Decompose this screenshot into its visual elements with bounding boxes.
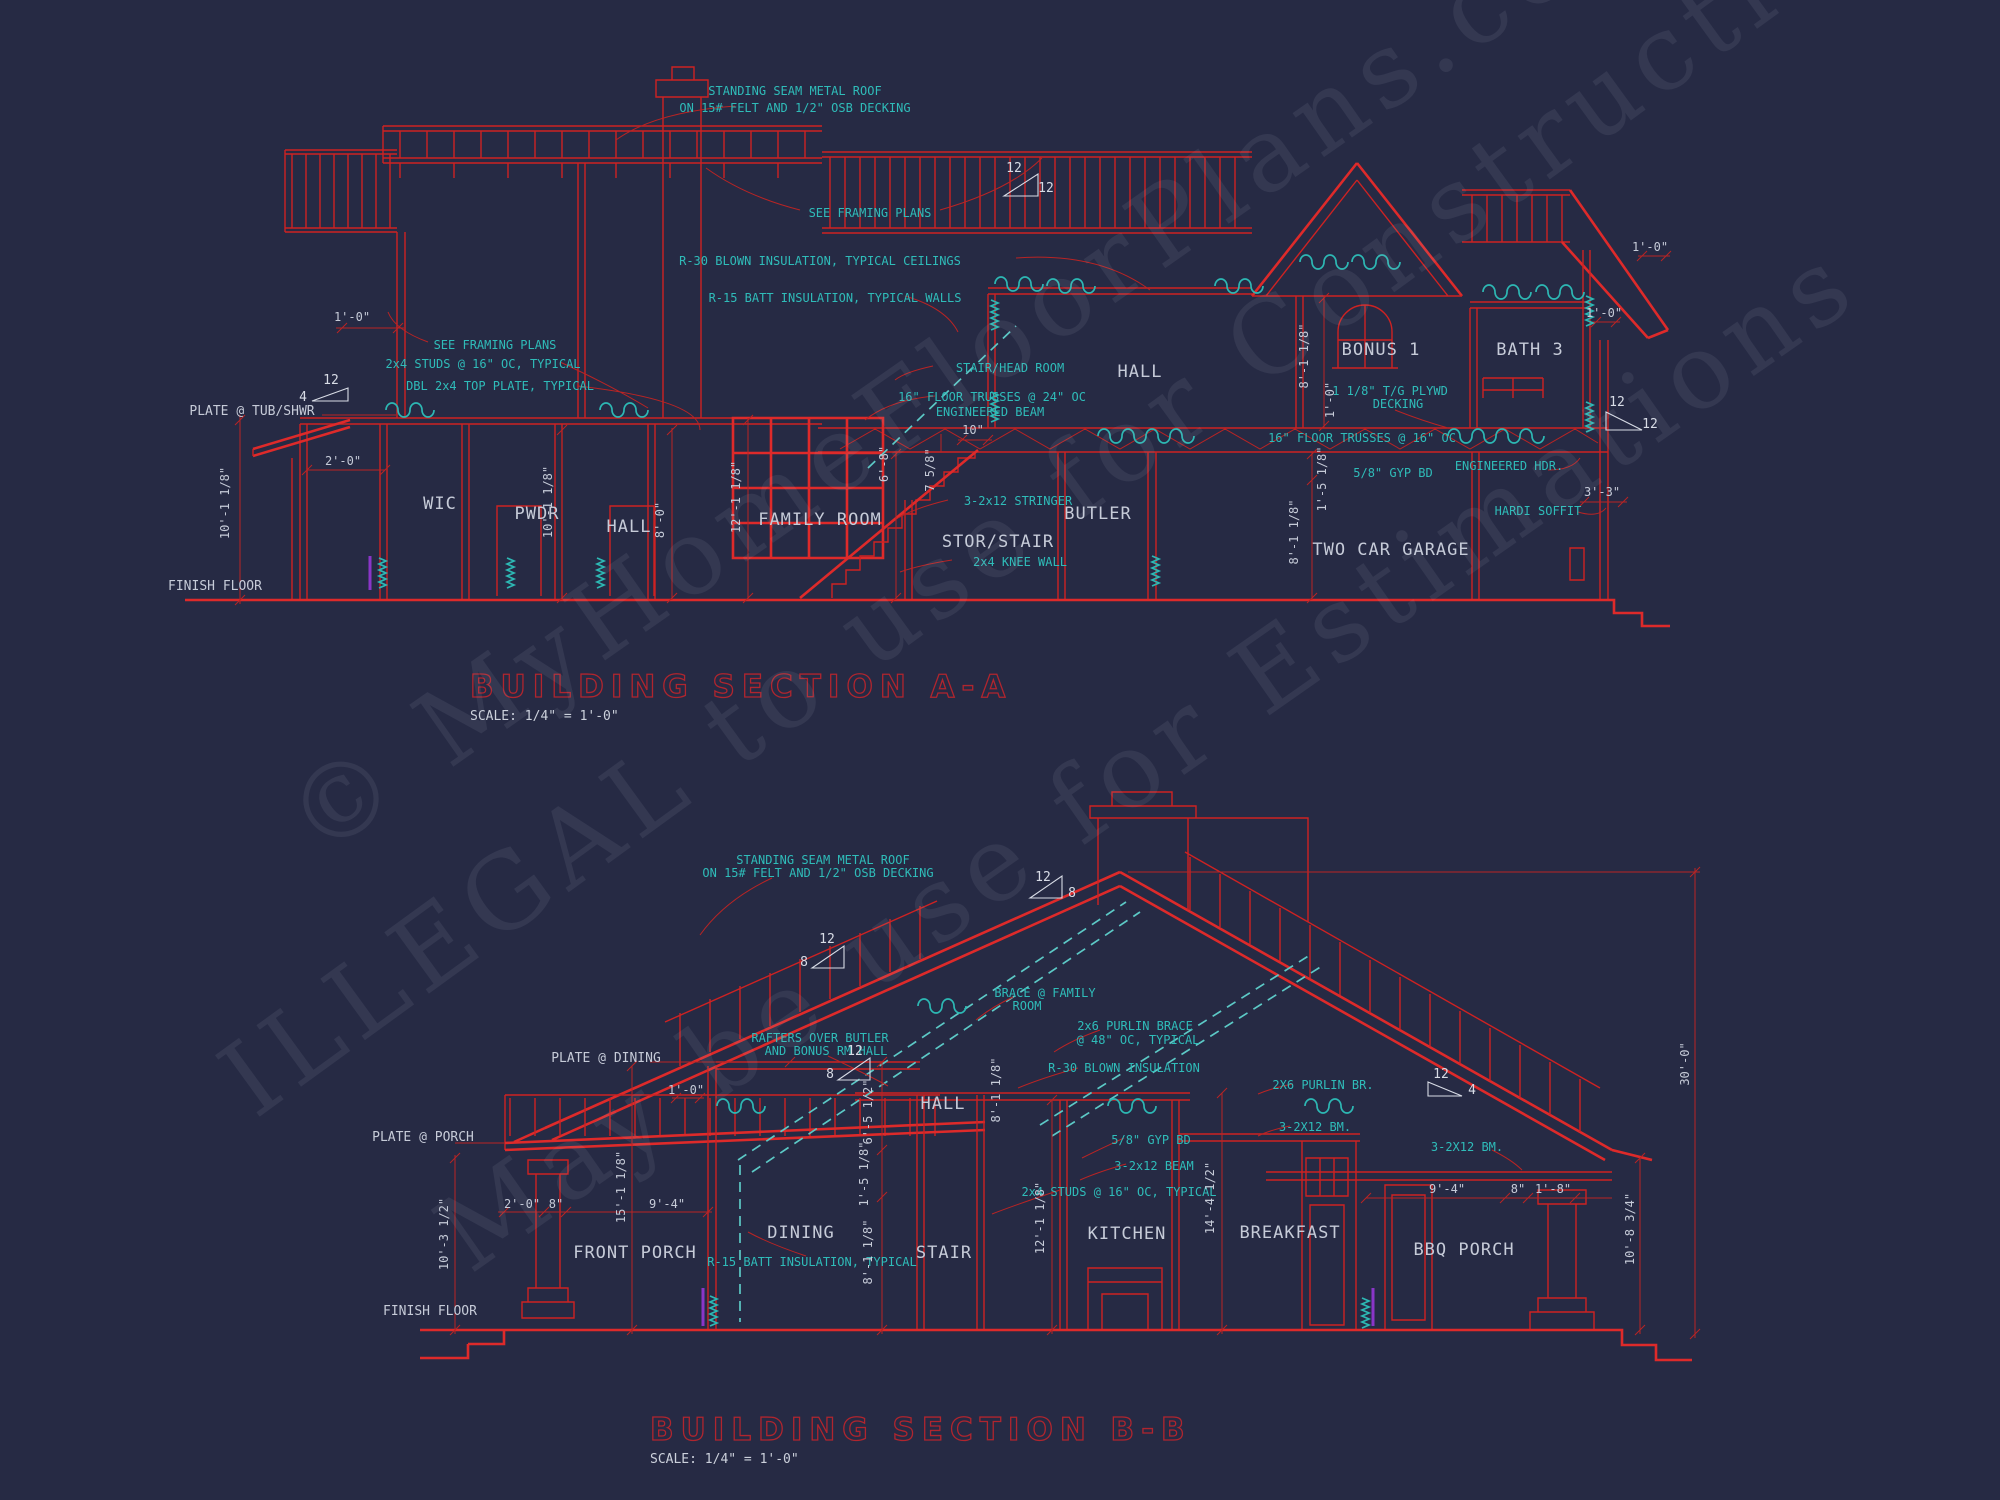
note-roof-a2: ON 15# FELT AND 1/2" OSB DECKING — [679, 101, 910, 115]
slope-b-5: 8 — [826, 1067, 834, 1082]
note-r30-b: R-30 BLOWN INSULATION — [1048, 1061, 1200, 1075]
dim-b-13: 8" — [1511, 1182, 1525, 1196]
note-studs-a: 2x4 STUDS @ 16" OC, TYPICAL — [385, 357, 580, 371]
dim-a-0: 1'-0" — [334, 310, 370, 324]
note-brace-b1: BRACE @ FAMILY — [994, 986, 1096, 1000]
room-bbqporch: BBQ PORCH — [1413, 1240, 1514, 1260]
dim-a-12: 8'-1 1/8" — [1287, 499, 1301, 564]
note-gyp-b: 5/8" GYP BD — [1111, 1133, 1190, 1147]
note-bm-b1: 3-2X12 BM. — [1279, 1120, 1351, 1134]
note-bm-b2: 3-2X12 BM. — [1431, 1140, 1503, 1154]
slope-a-0: 12 — [323, 373, 339, 388]
slope-b-1: 8 — [1068, 886, 1076, 901]
note-r15-a: R-15 BATT INSULATION, TYPICAL WALLS — [709, 291, 962, 305]
note-purlin-b1: 2x6 PURLIN BRACE — [1077, 1019, 1193, 1033]
dim-b-12: 9'-4" — [1429, 1182, 1465, 1196]
dim-a-3: 10'-1 1/8" — [541, 466, 555, 538]
dim-a-1: 2'-0" — [325, 454, 361, 468]
room-frontporch: FRONT PORCH — [573, 1243, 697, 1263]
room-breakfast: BREAKFAST — [1239, 1223, 1340, 1243]
slope-a-1: 4 — [299, 390, 307, 405]
dim-b-15: 10'-8 3/4" — [1623, 1193, 1637, 1265]
note-topplate-a: DBL 2x4 TOP PLATE, TYPICAL — [406, 379, 594, 393]
room-wic: WIC — [423, 494, 457, 514]
dim-a-10: 1'-0" — [1323, 382, 1337, 418]
dim-a-13: 1'-5 1/8" — [1315, 446, 1329, 511]
room-kitchen: KITCHEN — [1088, 1224, 1167, 1244]
blueprint-canvas: STANDING SEAM METAL ROOF ON 15# FELT AND… — [0, 0, 2000, 1500]
note-plywd-a2: DECKING — [1373, 397, 1424, 411]
slope-b-7: 4 — [1468, 1083, 1476, 1098]
room-bath3: BATH 3 — [1496, 340, 1563, 360]
slope-a-3: 12 — [1038, 181, 1054, 196]
blueprint-page: STANDING SEAM METAL ROOF ON 15# FELT AND… — [0, 0, 2000, 1500]
dim-a-11: 1'-0" — [1586, 306, 1622, 320]
slope-b-6: 12 — [1433, 1067, 1449, 1082]
dim-a-2: 10'-1 1/8" — [218, 467, 232, 539]
section-b-scale: SCALE: 1/4" = 1'-0" — [650, 1452, 799, 1467]
note-studs-b: 2x4 STUDS @ 16" OC, TYPICAL — [1021, 1185, 1216, 1199]
note-framing-a: SEE FRAMING PLANS — [809, 206, 932, 220]
note-purlinbr-b: 2X6 PURLIN BR. — [1272, 1078, 1373, 1092]
dim-b-10: 12'-1 1/8" — [1033, 1182, 1047, 1254]
note-brace-b2: ROOM — [1013, 999, 1042, 1013]
dim-b-9: 8'-1 1/8" — [989, 1057, 1003, 1122]
watermark: © MyHomeFloorPlans.com May be use for Es… — [198, 0, 1925, 1295]
ref-plate-porch: PLATE @ PORCH — [372, 1130, 474, 1145]
room-hall-b: HALL — [921, 1094, 966, 1114]
note-plywd-a1: 1 1/8" T/G PLYWD — [1332, 384, 1448, 398]
dim-b-8: 8'-1 1/8" — [861, 1219, 875, 1284]
note-trusses16-a: 16" FLOOR TRUSSES @ 16" OC — [1268, 431, 1456, 445]
note-roof-a1: STANDING SEAM METAL ROOF — [708, 84, 881, 98]
section-b-title: BUILDING SECTION B-B — [650, 1412, 1192, 1448]
dim-b-16: 30'-0" — [1678, 1042, 1692, 1085]
dim-b-3: 9'-4" — [649, 1197, 685, 1211]
room-stair: STAIR — [916, 1243, 972, 1263]
dim-b-7: 1'-5 1/8" — [857, 1141, 871, 1206]
note-purlin-b2: @ 48" OC, TYPICAL — [1077, 1033, 1200, 1047]
note-roof-b1: STANDING SEAM METAL ROOF — [736, 853, 909, 867]
ref-plate-tubshwr: PLATE @ TUB/SHWR — [189, 404, 314, 419]
room-dining: DINING — [767, 1223, 834, 1243]
slope-b-4: 12 — [847, 1044, 863, 1059]
dim-a-15: 1'-0" — [1632, 240, 1668, 254]
dim-b-11: 14'-4 1/2" — [1203, 1162, 1217, 1234]
dim-b-6: 6'-5 1/2" — [861, 1079, 875, 1144]
note-r15-b: R-15 BATT INSULATION, TYPICAL — [707, 1255, 917, 1269]
dim-b-14: 1'-8" — [1535, 1182, 1571, 1196]
slope-a-2: 12 — [1006, 161, 1022, 176]
batt-coils-b — [710, 1296, 1369, 1328]
note-gyp-a: 5/8" GYP BD — [1353, 466, 1432, 480]
ref-finishfloor-b: FINISH FLOOR — [383, 1304, 477, 1319]
ref-finishfloor-a: FINISH FLOOR — [168, 579, 262, 594]
note-beam-b: 3-2x12 BEAM — [1114, 1159, 1193, 1173]
note-r30-a: R-30 BLOWN INSULATION, TYPICAL CEILINGS — [679, 254, 961, 268]
note-framing-a2: SEE FRAMING PLANS — [434, 338, 557, 352]
watermark-line-3: ILLEGAL to use for Construction — [198, 0, 1925, 1140]
